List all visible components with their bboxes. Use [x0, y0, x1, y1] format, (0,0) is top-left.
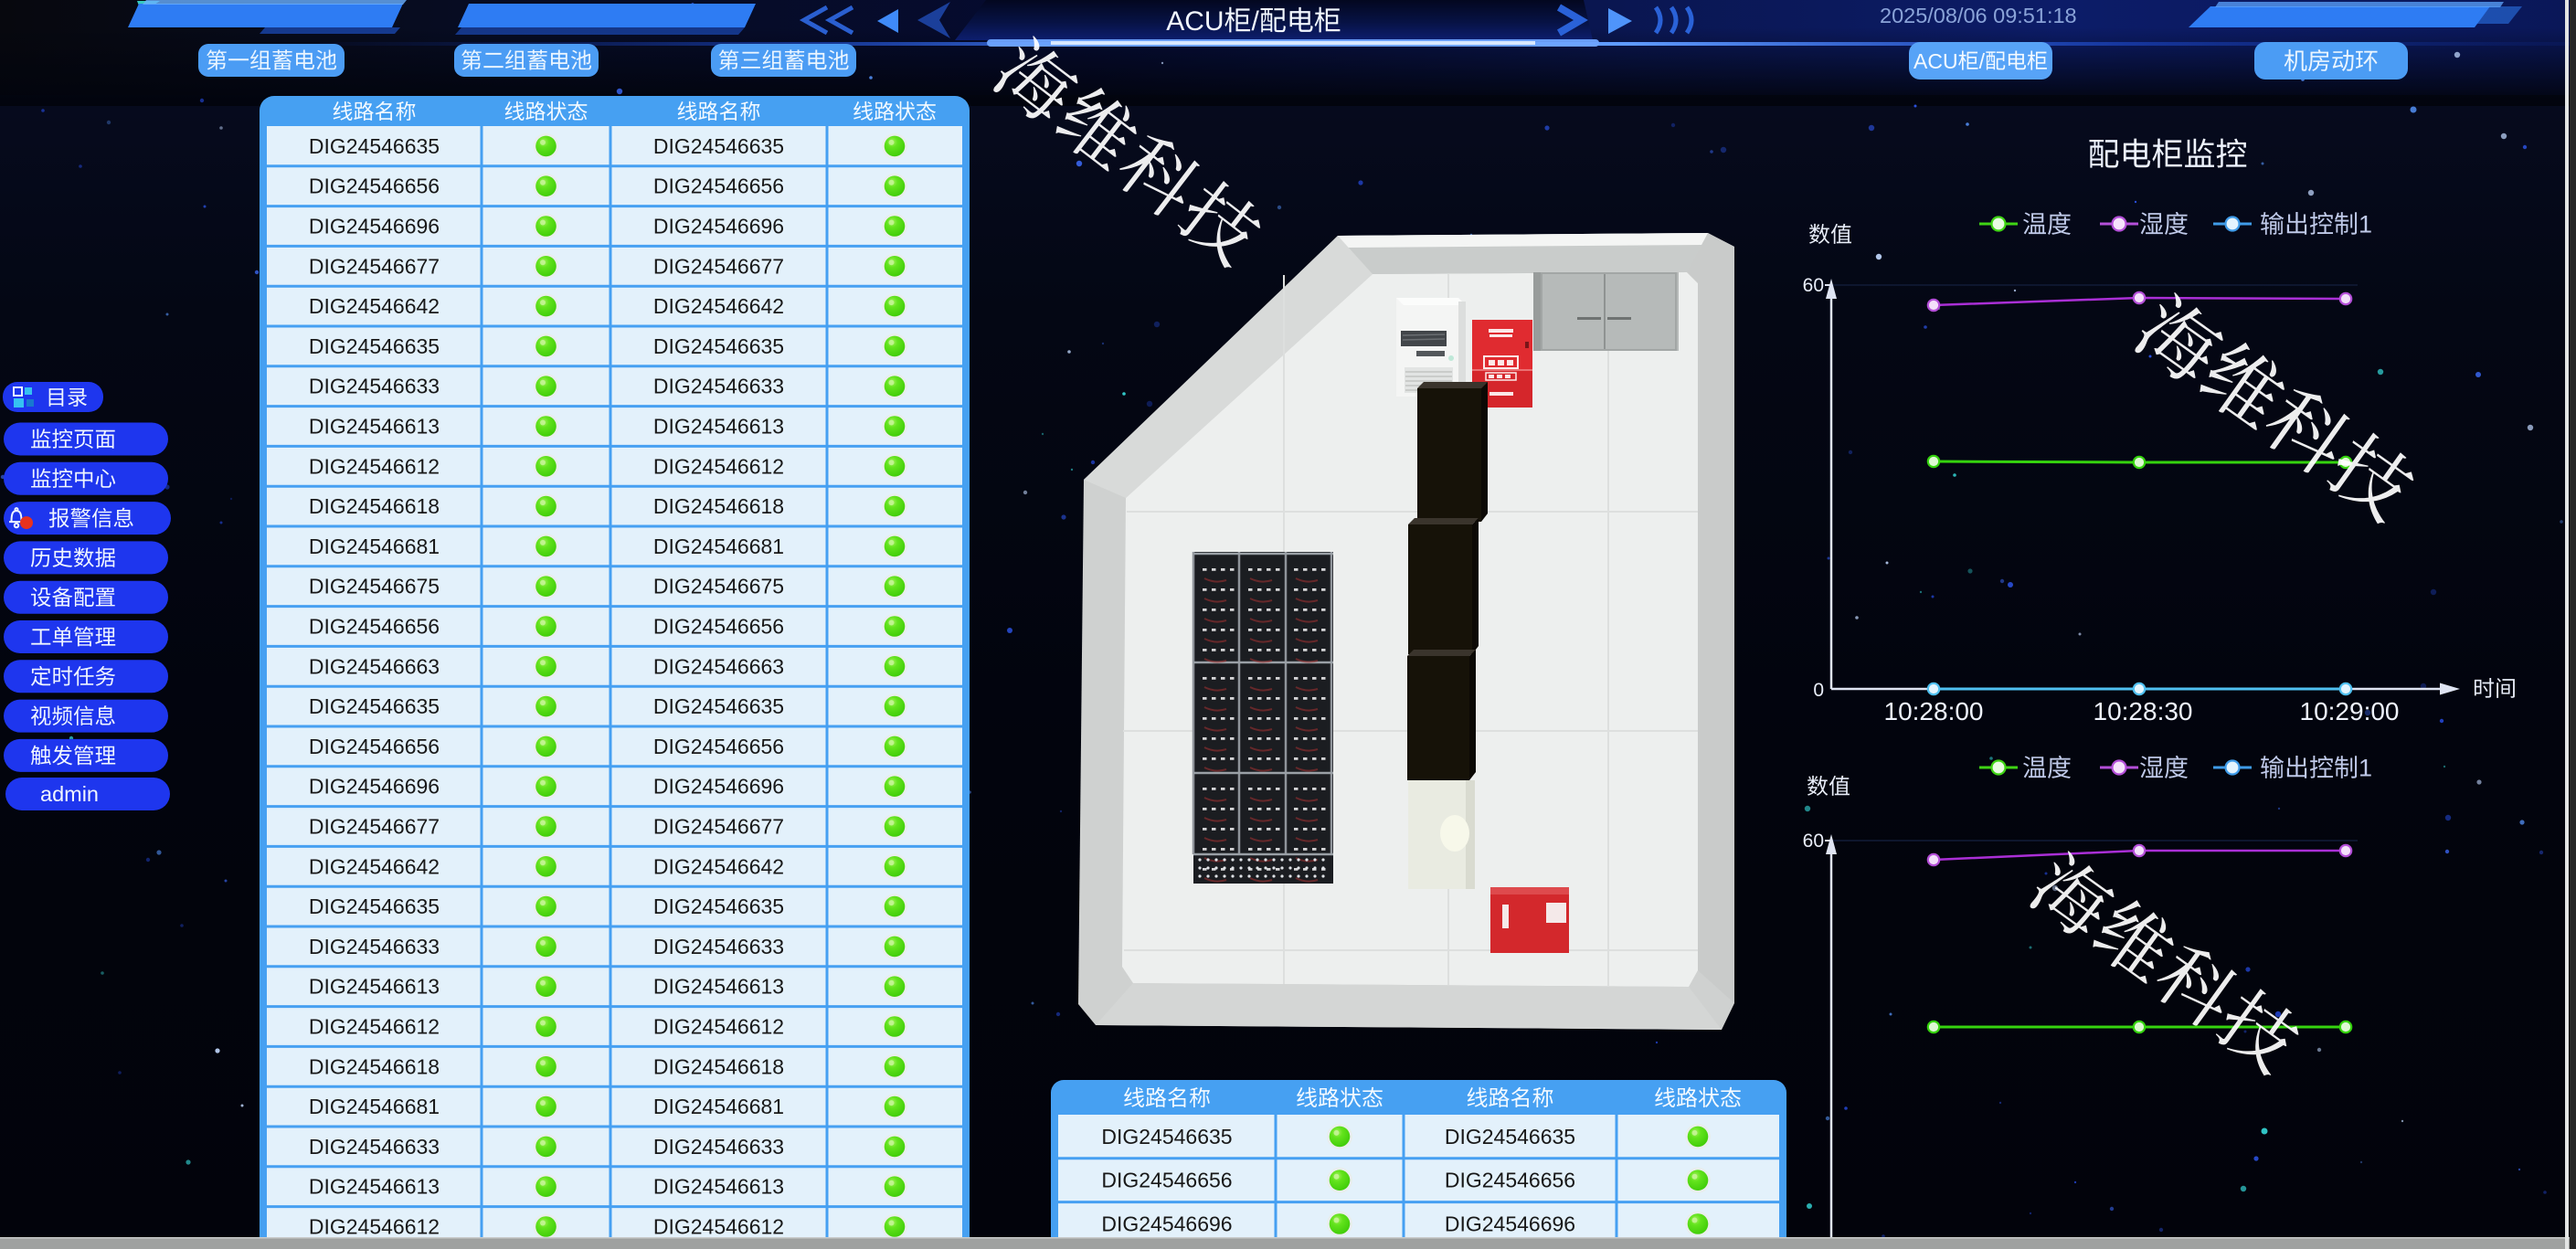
svg-text:DIG24546656: DIG24546656	[1101, 1169, 1232, 1192]
svg-text:/: /	[1252, 6, 1260, 37]
svg-text:DIG24546613: DIG24546613	[309, 975, 440, 999]
svg-text:DIG24546656: DIG24546656	[653, 615, 784, 639]
svg-text:admin: admin	[40, 782, 99, 806]
svg-text:DIG24546677: DIG24546677	[653, 254, 784, 278]
svg-text:DIG24546612: DIG24546612	[309, 1215, 440, 1239]
svg-text:DIG24546618: DIG24546618	[653, 494, 784, 518]
svg-text:1: 1	[2359, 211, 2372, 238]
svg-text:DIG24546635: DIG24546635	[1445, 1125, 1575, 1148]
svg-text:DIG24546663: DIG24546663	[309, 654, 440, 678]
svg-text:DIG24546635: DIG24546635	[1101, 1125, 1232, 1148]
svg-text:DIG24546618: DIG24546618	[309, 1054, 440, 1078]
svg-text:DIG24546613: DIG24546613	[309, 1175, 440, 1199]
svg-text:DIG24546663: DIG24546663	[653, 654, 784, 678]
svg-text:DIG24546633: DIG24546633	[309, 935, 440, 958]
svg-text:DIG24546613: DIG24546613	[653, 1175, 784, 1199]
svg-text:DIG24546642: DIG24546642	[309, 294, 440, 318]
svg-text:DIG24546677: DIG24546677	[309, 815, 440, 839]
svg-text:DIG24546635: DIG24546635	[309, 694, 440, 718]
svg-text:DIG24546633: DIG24546633	[653, 935, 784, 958]
svg-text:DIG24546618: DIG24546618	[309, 494, 440, 518]
svg-text:DIG24546675: DIG24546675	[653, 575, 784, 598]
svg-text:DIG24546675: DIG24546675	[309, 575, 440, 598]
svg-text:DIG24546613: DIG24546613	[653, 975, 784, 999]
svg-text:DIG24546613: DIG24546613	[653, 415, 784, 439]
svg-text:10:28:00: 10:28:00	[1884, 697, 1984, 725]
svg-text:DIG24546635: DIG24546635	[309, 334, 440, 358]
svg-text:DIG24546612: DIG24546612	[309, 454, 440, 478]
svg-text:DIG24546635: DIG24546635	[309, 894, 440, 918]
svg-text:DIG24546612: DIG24546612	[653, 454, 784, 478]
svg-text:2025/08/06 09:51:18: 2025/08/06 09:51:18	[1880, 4, 2077, 27]
svg-text:DIG24546635: DIG24546635	[653, 894, 784, 918]
svg-text:ACU: ACU	[1166, 6, 1224, 37]
svg-text:DIG24546633: DIG24546633	[309, 1135, 440, 1159]
svg-text:DIG24546613: DIG24546613	[309, 415, 440, 439]
svg-text:DIG24546681: DIG24546681	[309, 535, 440, 558]
svg-text:DIG24546696: DIG24546696	[653, 775, 784, 799]
svg-text:DIG24546681: DIG24546681	[653, 1095, 784, 1118]
svg-text:DIG24546633: DIG24546633	[653, 1135, 784, 1159]
svg-text:60: 60	[1803, 831, 1824, 852]
svg-text:0: 0	[1813, 680, 1824, 701]
svg-text:10:28:30: 10:28:30	[2094, 697, 2193, 725]
svg-text:DIG24546656: DIG24546656	[1445, 1169, 1575, 1192]
svg-text:10:29:00: 10:29:00	[2300, 697, 2400, 725]
svg-text:DIG24546612: DIG24546612	[309, 1015, 440, 1039]
svg-text:DIG24546635: DIG24546635	[653, 134, 784, 158]
svg-text:DIG24546696: DIG24546696	[309, 215, 440, 238]
svg-text:DIG24546642: DIG24546642	[653, 294, 784, 318]
svg-text:ACU: ACU	[1913, 49, 1958, 73]
svg-text:60: 60	[1803, 275, 1824, 296]
svg-text:1: 1	[2359, 755, 2372, 782]
svg-text:DIG24546696: DIG24546696	[1445, 1212, 1575, 1236]
svg-text:DIG24546681: DIG24546681	[309, 1095, 440, 1118]
svg-text:DIG24546642: DIG24546642	[653, 854, 784, 878]
svg-text:DIG24546633: DIG24546633	[309, 375, 440, 398]
svg-text:/: /	[1979, 49, 1986, 73]
svg-text:DIG24546656: DIG24546656	[653, 175, 784, 198]
svg-text:DIG24546635: DIG24546635	[653, 334, 784, 358]
svg-text:DIG24546635: DIG24546635	[309, 134, 440, 158]
svg-text:DIG24546677: DIG24546677	[309, 254, 440, 278]
svg-text:DIG24546677: DIG24546677	[653, 815, 784, 839]
svg-text:DIG24546656: DIG24546656	[309, 175, 440, 198]
svg-text:DIG24546618: DIG24546618	[653, 1054, 784, 1078]
svg-text:DIG24546681: DIG24546681	[653, 535, 784, 558]
svg-text:DIG24546612: DIG24546612	[653, 1015, 784, 1039]
svg-text:DIG24546696: DIG24546696	[653, 215, 784, 238]
svg-text:DIG24546696: DIG24546696	[1101, 1212, 1232, 1236]
svg-text:DIG24546612: DIG24546612	[653, 1215, 784, 1239]
svg-text:DIG24546656: DIG24546656	[309, 615, 440, 639]
svg-text:DIG24546656: DIG24546656	[309, 735, 440, 758]
svg-text:DIG24546696: DIG24546696	[309, 775, 440, 799]
svg-text:DIG24546656: DIG24546656	[653, 735, 784, 758]
svg-text:DIG24546635: DIG24546635	[653, 694, 784, 718]
svg-text:DIG24546633: DIG24546633	[653, 375, 784, 398]
svg-text:DIG24546642: DIG24546642	[309, 854, 440, 878]
